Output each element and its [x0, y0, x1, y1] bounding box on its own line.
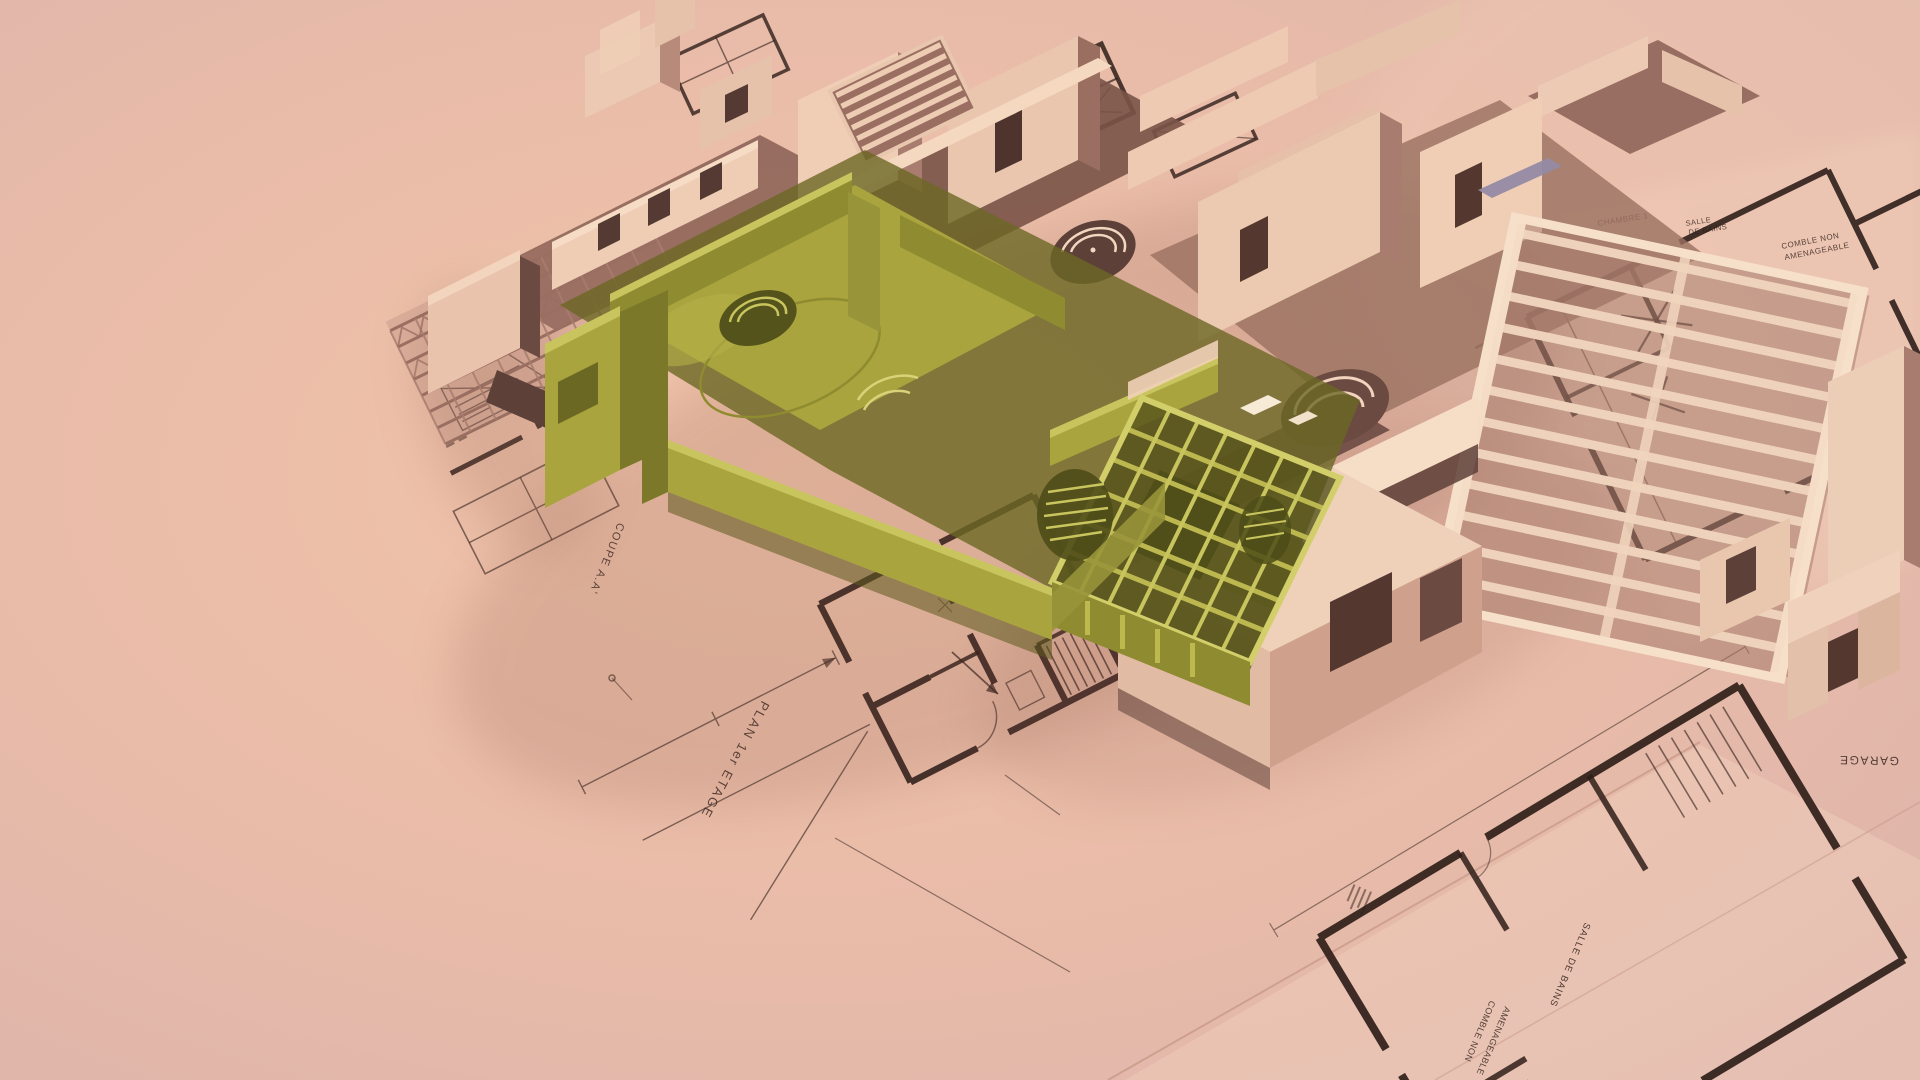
- architectural-render-image: PLAN 1er ETAGE COUPE A.A': [0, 0, 1920, 1080]
- label-garage: GARAGE: [1838, 753, 1899, 768]
- render-canvas: PLAN 1er ETAGE COUPE A.A': [0, 0, 1920, 1080]
